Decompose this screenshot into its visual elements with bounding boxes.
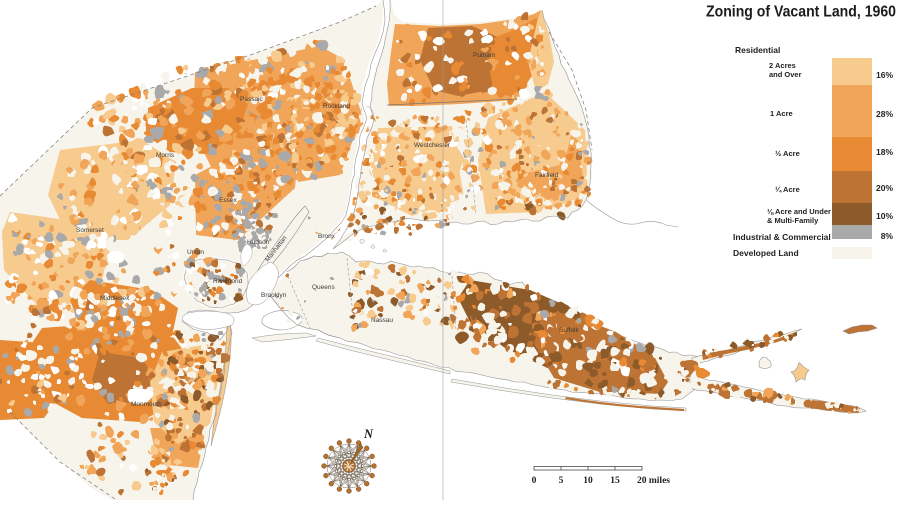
svg-text:16%: 16% <box>876 70 893 80</box>
svg-text:Union: Union <box>187 249 204 256</box>
svg-text:Bronx: Bronx <box>318 233 336 240</box>
svg-text:20 miles: 20 miles <box>637 476 670 486</box>
svg-text:Middlesex: Middlesex <box>100 295 130 302</box>
svg-text:20%: 20% <box>876 183 893 193</box>
svg-text:10: 10 <box>583 476 593 486</box>
svg-text:5: 5 <box>559 476 564 486</box>
svg-text:Residential: Residential <box>735 45 780 55</box>
svg-text:Richmond: Richmond <box>213 278 243 285</box>
svg-text:and Over: and Over <box>769 70 802 79</box>
svg-text:Brooklyn: Brooklyn <box>261 292 287 299</box>
svg-text:Industrial & Commercial: Industrial & Commercial <box>733 232 831 242</box>
svg-text:Suffolk: Suffolk <box>559 327 580 334</box>
svg-text:8%: 8% <box>881 231 894 241</box>
svg-text:Somerset: Somerset <box>76 227 104 234</box>
svg-text:15: 15 <box>610 476 620 486</box>
svg-text:0: 0 <box>532 476 537 486</box>
svg-text:2 Acres: 2 Acres <box>769 61 796 70</box>
svg-text:Essex: Essex <box>219 197 237 204</box>
svg-text:Monmouth: Monmouth <box>131 401 162 408</box>
svg-text:Passaic: Passaic <box>240 96 264 103</box>
svg-text:Nassau: Nassau <box>371 317 393 324</box>
svg-text:28%: 28% <box>876 109 893 119</box>
svg-text:Queens: Queens <box>312 284 336 291</box>
svg-text:¼ Acre: ¼ Acre <box>775 185 800 194</box>
svg-text:Fairfield: Fairfield <box>535 172 559 179</box>
svg-text:Rockland: Rockland <box>323 103 350 110</box>
svg-text:N: N <box>363 427 374 441</box>
svg-text:Zoning of Vacant Land, 1960: Zoning of Vacant Land, 1960 <box>706 4 896 21</box>
svg-text:Westchester: Westchester <box>414 142 451 149</box>
svg-text:10%: 10% <box>876 211 893 221</box>
svg-text:⅛ Acre and Under: ⅛ Acre and Under <box>767 207 831 216</box>
svg-text:Morris: Morris <box>156 152 175 159</box>
svg-text:Developed Land: Developed Land <box>733 248 799 258</box>
svg-text:& Multi-Family: & Multi-Family <box>767 216 819 225</box>
svg-text:Hudson: Hudson <box>247 239 270 246</box>
svg-text:Putnam: Putnam <box>473 52 495 59</box>
svg-text:½ Acre: ½ Acre <box>775 149 800 158</box>
svg-text:18%: 18% <box>876 147 893 157</box>
svg-text:1 Acre: 1 Acre <box>770 109 793 118</box>
